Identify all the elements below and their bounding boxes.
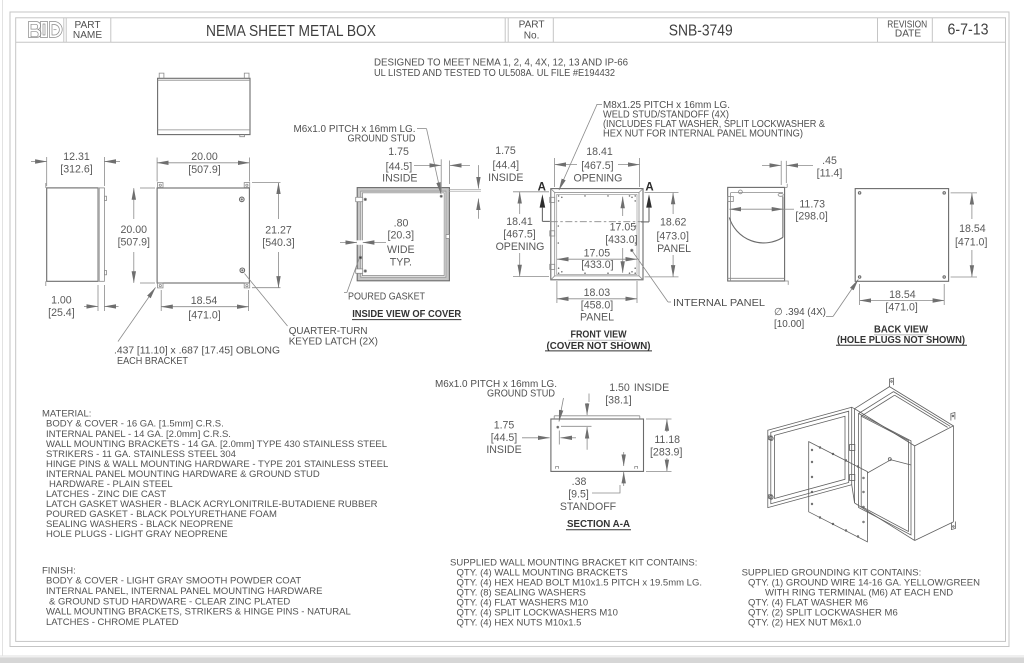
- svg-text:OPENING: OPENING: [496, 241, 545, 253]
- svg-text:TYP.: TYP.: [390, 257, 412, 269]
- svg-text:[10.00]: [10.00]: [774, 319, 804, 330]
- svg-text:[44.4]: [44.4]: [493, 160, 520, 172]
- svg-text:[458.0]: [458.0]: [581, 300, 613, 312]
- svg-text:INTERNAL PANEL: INTERNAL PANEL: [673, 298, 766, 309]
- svg-text:QTY. (2) HEX NUT M6x1.0: QTY. (2) HEX NUT M6x1.0: [748, 617, 861, 628]
- svg-text:PANEL: PANEL: [657, 243, 691, 255]
- svg-text:[507.9]: [507.9]: [188, 164, 220, 176]
- svg-text:OPENING: OPENING: [573, 172, 622, 184]
- svg-text:18.54: 18.54: [191, 295, 218, 307]
- svg-text:[11.4]: [11.4]: [817, 168, 843, 180]
- svg-text:[312.6]: [312.6]: [60, 164, 92, 176]
- svg-text:DESIGNED TO MEET NEMA 1, 2, 4,: DESIGNED TO MEET NEMA 1, 2, 4, 4X, 12, 1…: [374, 57, 628, 68]
- svg-text:1.75: 1.75: [494, 420, 515, 432]
- svg-text:HEX NUT FOR INTERNAL PANEL MOU: HEX NUT FOR INTERNAL PANEL MOUNTING): [603, 128, 803, 139]
- svg-text:[25.4]: [25.4]: [48, 307, 75, 319]
- svg-text:18.62: 18.62: [660, 217, 687, 229]
- svg-text:KEYED LATCH (2X): KEYED LATCH (2X): [289, 337, 378, 348]
- svg-text:[433.0]: [433.0]: [581, 259, 613, 271]
- svg-text:[433.0]: [433.0]: [605, 234, 637, 246]
- svg-text:17.05: 17.05: [610, 222, 637, 234]
- svg-text:UL LISTED AND TESTED TO UL508A: UL LISTED AND TESTED TO UL508A. UL FILE …: [374, 68, 615, 79]
- svg-text:20.00: 20.00: [191, 151, 218, 163]
- svg-text:POURED GASKET: POURED GASKET: [348, 291, 425, 302]
- svg-text:PANEL: PANEL: [580, 312, 614, 324]
- svg-text:18.03: 18.03: [584, 287, 611, 299]
- svg-text:PART: PART: [519, 20, 545, 31]
- svg-text:EACH BRACKET: EACH BRACKET: [117, 356, 188, 367]
- svg-text:11.18: 11.18: [654, 434, 680, 446]
- svg-text:INSIDE VIEW OF COVER: INSIDE VIEW OF COVER: [352, 309, 462, 320]
- svg-text:[471.0]: [471.0]: [188, 309, 220, 321]
- svg-text:11.73: 11.73: [799, 199, 825, 211]
- svg-text:.80: .80: [394, 218, 409, 230]
- svg-text:SNB-3749: SNB-3749: [669, 23, 733, 40]
- svg-text:[9.5]: [9.5]: [568, 489, 589, 501]
- svg-text:INSIDE: INSIDE: [486, 444, 521, 456]
- svg-text:[467.5]: [467.5]: [503, 229, 535, 241]
- svg-text:NAME: NAME: [73, 30, 102, 41]
- svg-text:LATCHES - CHROME PLATED: LATCHES - CHROME PLATED: [46, 617, 179, 628]
- svg-text:No.: No.: [524, 31, 540, 42]
- svg-text:HOLE PLUGS - LIGHT GRAY NEOPRE: HOLE PLUGS - LIGHT GRAY NEOPRENE: [46, 529, 228, 540]
- svg-text:1.75: 1.75: [495, 145, 516, 157]
- svg-text:GROUND STUD: GROUND STUD: [487, 388, 555, 399]
- svg-text:STANDOFF: STANDOFF: [560, 501, 617, 513]
- svg-text:NEMA SHEET METAL BOX: NEMA SHEET METAL BOX: [206, 23, 376, 40]
- svg-text:[283.9]: [283.9]: [650, 447, 682, 459]
- svg-text:BACK VIEW: BACK VIEW: [874, 324, 928, 335]
- svg-text:FRONT VIEW: FRONT VIEW: [571, 329, 627, 340]
- svg-text:DATE: DATE: [895, 29, 921, 40]
- svg-text:[540.3]: [540.3]: [262, 237, 294, 249]
- svg-text:WIDE: WIDE: [387, 244, 415, 256]
- svg-text:A: A: [645, 182, 653, 194]
- svg-text:18.41: 18.41: [586, 146, 613, 158]
- svg-text:GROUND STUD: GROUND STUD: [348, 134, 416, 145]
- svg-text:[507.9]: [507.9]: [118, 237, 150, 249]
- svg-text:1.00: 1.00: [51, 295, 72, 307]
- svg-text:.437 [11.10] x .687 [17.45] OB: .437 [11.10] x .687 [17.45] OBLONG: [114, 346, 280, 357]
- svg-text:INSIDE: INSIDE: [488, 172, 523, 184]
- svg-text:QUARTER-TURN: QUARTER-TURN: [289, 326, 368, 337]
- svg-text:SECTION A-A: SECTION A-A: [567, 519, 631, 530]
- svg-text:QTY. (4) HEX NUTS M10x1.5: QTY. (4) HEX NUTS M10x1.5: [457, 617, 582, 628]
- svg-text:1.50: 1.50: [609, 382, 630, 394]
- svg-text:18.41: 18.41: [506, 216, 533, 228]
- svg-text:21.27: 21.27: [265, 225, 292, 237]
- svg-text:[471.0]: [471.0]: [955, 237, 987, 249]
- svg-text:INSIDE: INSIDE: [634, 382, 669, 394]
- svg-text:1.75: 1.75: [388, 146, 409, 158]
- svg-text:[471.0]: [471.0]: [885, 302, 917, 314]
- svg-text:17.05: 17.05: [584, 248, 611, 260]
- svg-text:6-7-13: 6-7-13: [948, 22, 989, 39]
- svg-text:18.54: 18.54: [959, 223, 986, 235]
- svg-text:[467.5]: [467.5]: [581, 160, 613, 172]
- svg-text:∅ .394 (4X): ∅ .394 (4X): [774, 307, 826, 318]
- svg-text:20.00: 20.00: [121, 224, 148, 236]
- svg-text:18.54: 18.54: [889, 289, 916, 301]
- svg-text:.38: .38: [572, 476, 587, 488]
- svg-text:(COVER NOT SHOWN): (COVER NOT SHOWN): [547, 341, 651, 352]
- svg-text:[44.5]: [44.5]: [386, 161, 413, 173]
- svg-text:(HOLE PLUGS NOT SHOWN): (HOLE PLUGS NOT SHOWN): [837, 335, 965, 346]
- svg-text:[44.5]: [44.5]: [491, 432, 518, 444]
- svg-text:INSIDE: INSIDE: [382, 172, 417, 184]
- svg-text:12.31: 12.31: [63, 151, 90, 163]
- svg-text:[38.1]: [38.1]: [605, 394, 632, 406]
- svg-text:[298.0]: [298.0]: [795, 210, 827, 222]
- svg-text:[473.0]: [473.0]: [656, 230, 688, 242]
- svg-text:.45: .45: [822, 155, 837, 167]
- svg-text:[20.3]: [20.3]: [388, 229, 415, 241]
